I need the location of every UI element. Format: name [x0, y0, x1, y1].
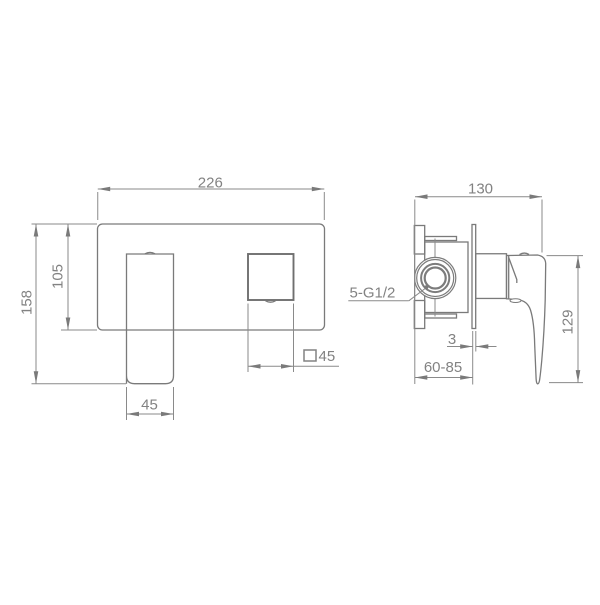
svg-text:129: 129 [560, 309, 577, 334]
svg-text:226: 226 [198, 175, 223, 192]
svg-text:45: 45 [141, 397, 158, 414]
svg-text:130: 130 [468, 181, 493, 198]
svg-text:3: 3 [448, 331, 456, 348]
svg-text:60-85: 60-85 [424, 359, 462, 376]
svg-text:45: 45 [319, 348, 336, 365]
svg-text:5-G1/2: 5-G1/2 [350, 285, 396, 302]
svg-text:105: 105 [50, 264, 67, 289]
svg-text:158: 158 [19, 290, 36, 315]
